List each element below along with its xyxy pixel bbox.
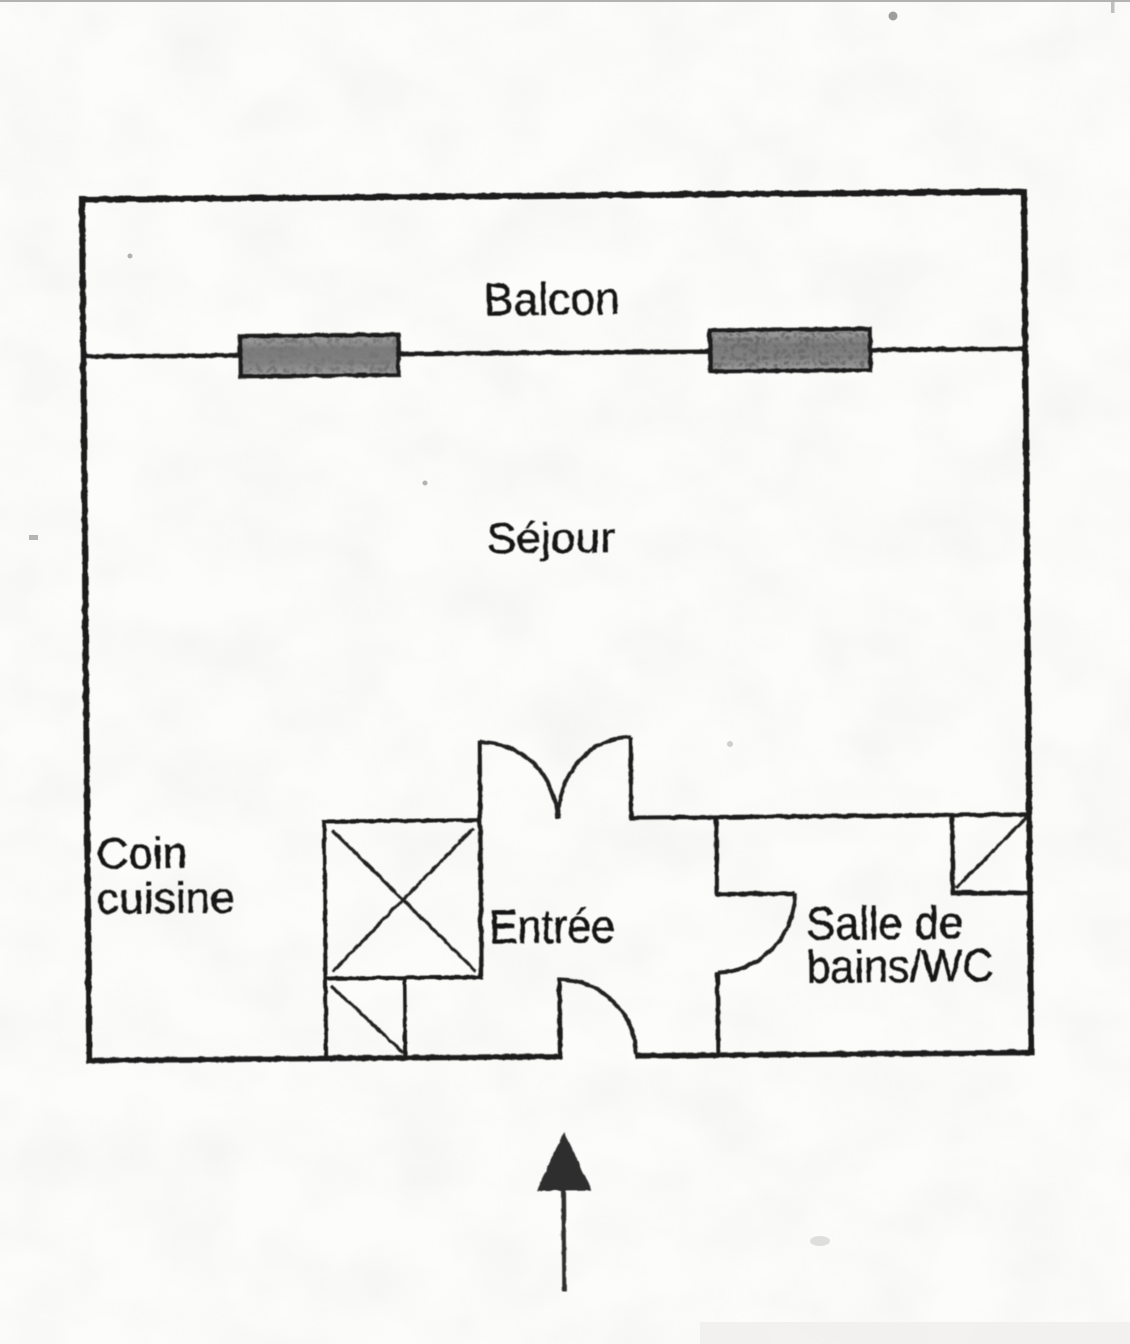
svg-text:cuisine: cuisine [96, 873, 234, 923]
svg-text:Coin: Coin [96, 828, 187, 878]
svg-text:bains/WC: bains/WC [806, 939, 993, 992]
svg-text:Balcon: Balcon [483, 272, 619, 324]
svg-text:Entrée: Entrée [488, 899, 614, 953]
svg-text:Séjour: Séjour [486, 514, 614, 563]
